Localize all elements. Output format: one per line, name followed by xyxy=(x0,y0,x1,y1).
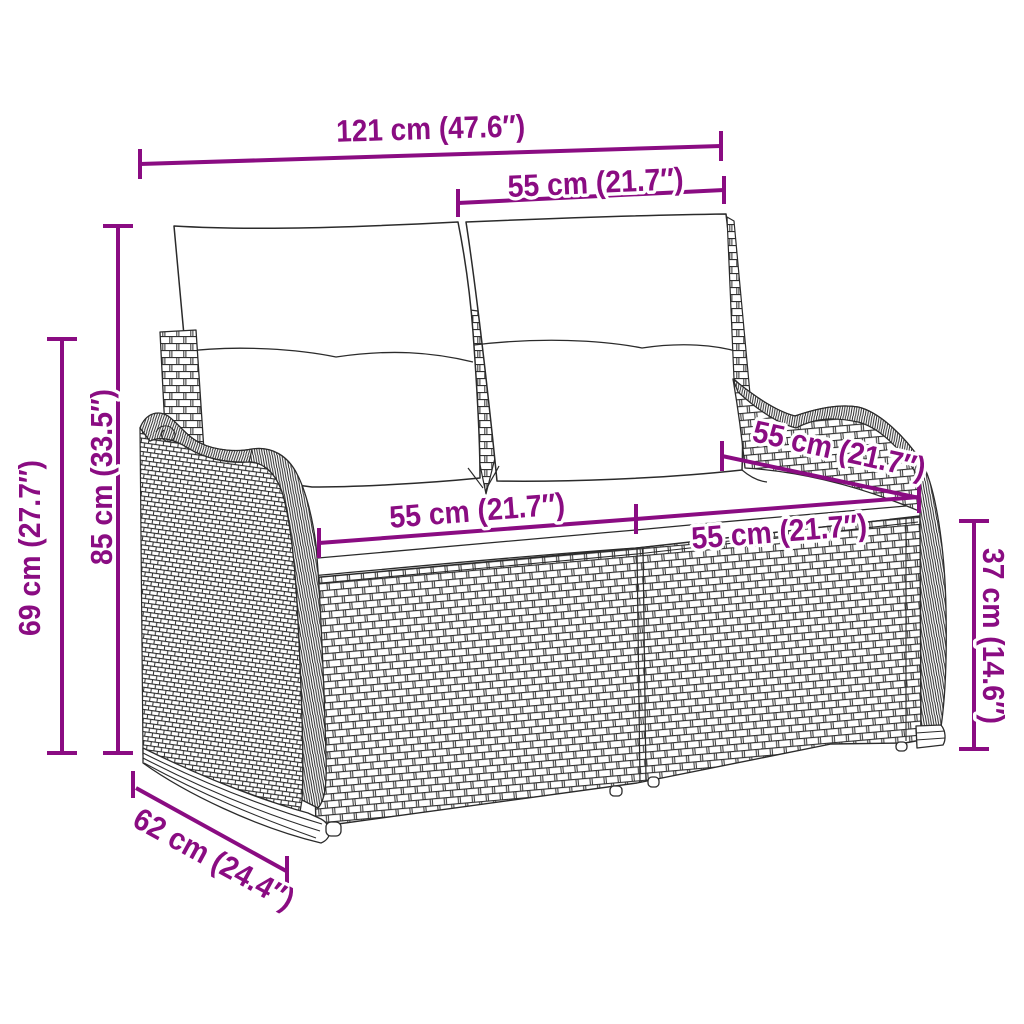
svg-text:69 cm (27.7″): 69 cm (27.7″) xyxy=(12,460,47,636)
svg-text:121 cm (47.6″): 121 cm (47.6″) xyxy=(336,108,526,149)
svg-text:37 cm (14.6″): 37 cm (14.6″) xyxy=(976,548,1011,724)
svg-text:85 cm (33.5″): 85 cm (33.5″) xyxy=(84,389,119,565)
